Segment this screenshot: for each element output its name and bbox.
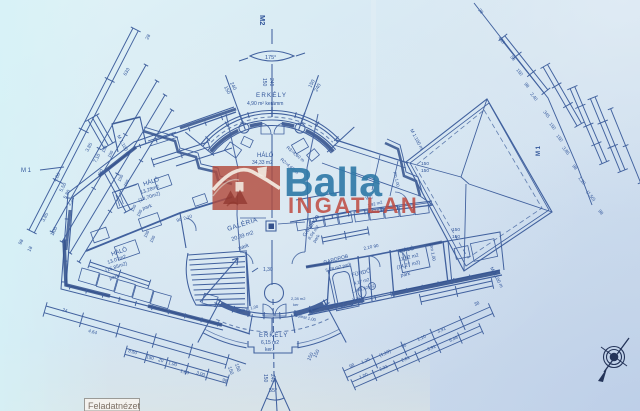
svg-text:34,33 m2: 34,33 m2 <box>252 160 273 166</box>
svg-text:M2: M2 <box>258 15 267 25</box>
svg-text:M 1: M 1 <box>21 168 32 174</box>
svg-text:ker: ker <box>293 302 299 307</box>
svg-text:HÁLÓ: HÁLÓ <box>257 152 274 159</box>
svg-text:INGATLAN: INGATLAN <box>288 193 419 218</box>
svg-text:150: 150 <box>452 234 460 240</box>
svg-text:1,30: 1,30 <box>263 267 273 273</box>
svg-text:240: 240 <box>268 78 274 87</box>
svg-text:150: 150 <box>421 168 429 174</box>
svg-text:Feladatnézet: Feladatnézet <box>88 401 141 411</box>
svg-text:240: 240 <box>269 374 275 383</box>
svg-text:ERKÉLY: ERKÉLY <box>256 92 287 99</box>
svg-text:2,28 m2: 2,28 m2 <box>291 296 306 301</box>
svg-text:150: 150 <box>261 78 267 87</box>
svg-text:175°: 175° <box>265 55 276 61</box>
svg-text:ker.: ker. <box>265 347 273 353</box>
svg-text:M 1: M 1 <box>536 145 542 156</box>
svg-text:4,90 m² kerámm: 4,90 m² kerámm <box>247 101 283 107</box>
svg-text:150: 150 <box>262 374 268 383</box>
svg-text:55°: 55° <box>269 388 277 394</box>
svg-text:150: 150 <box>452 227 460 233</box>
svg-text:ERKÉLY: ERKÉLY <box>259 332 288 339</box>
svg-text:150: 150 <box>421 161 429 167</box>
svg-text:6,15 m2: 6,15 m2 <box>261 340 279 346</box>
